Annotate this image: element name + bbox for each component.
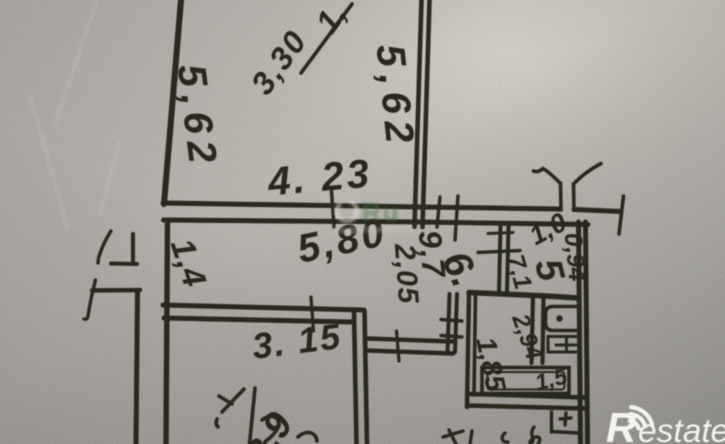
svg-text:R: R: [606, 404, 637, 444]
svg-text:0,94: 0,94: [559, 231, 592, 282]
svg-text:Ru: Ru: [362, 197, 401, 227]
svg-text:НЕДВИЖИМОСТЬ: НЕДВИЖИМОСТЬ: [334, 225, 417, 235]
svg-text:4. 23: 4. 23: [265, 152, 373, 205]
